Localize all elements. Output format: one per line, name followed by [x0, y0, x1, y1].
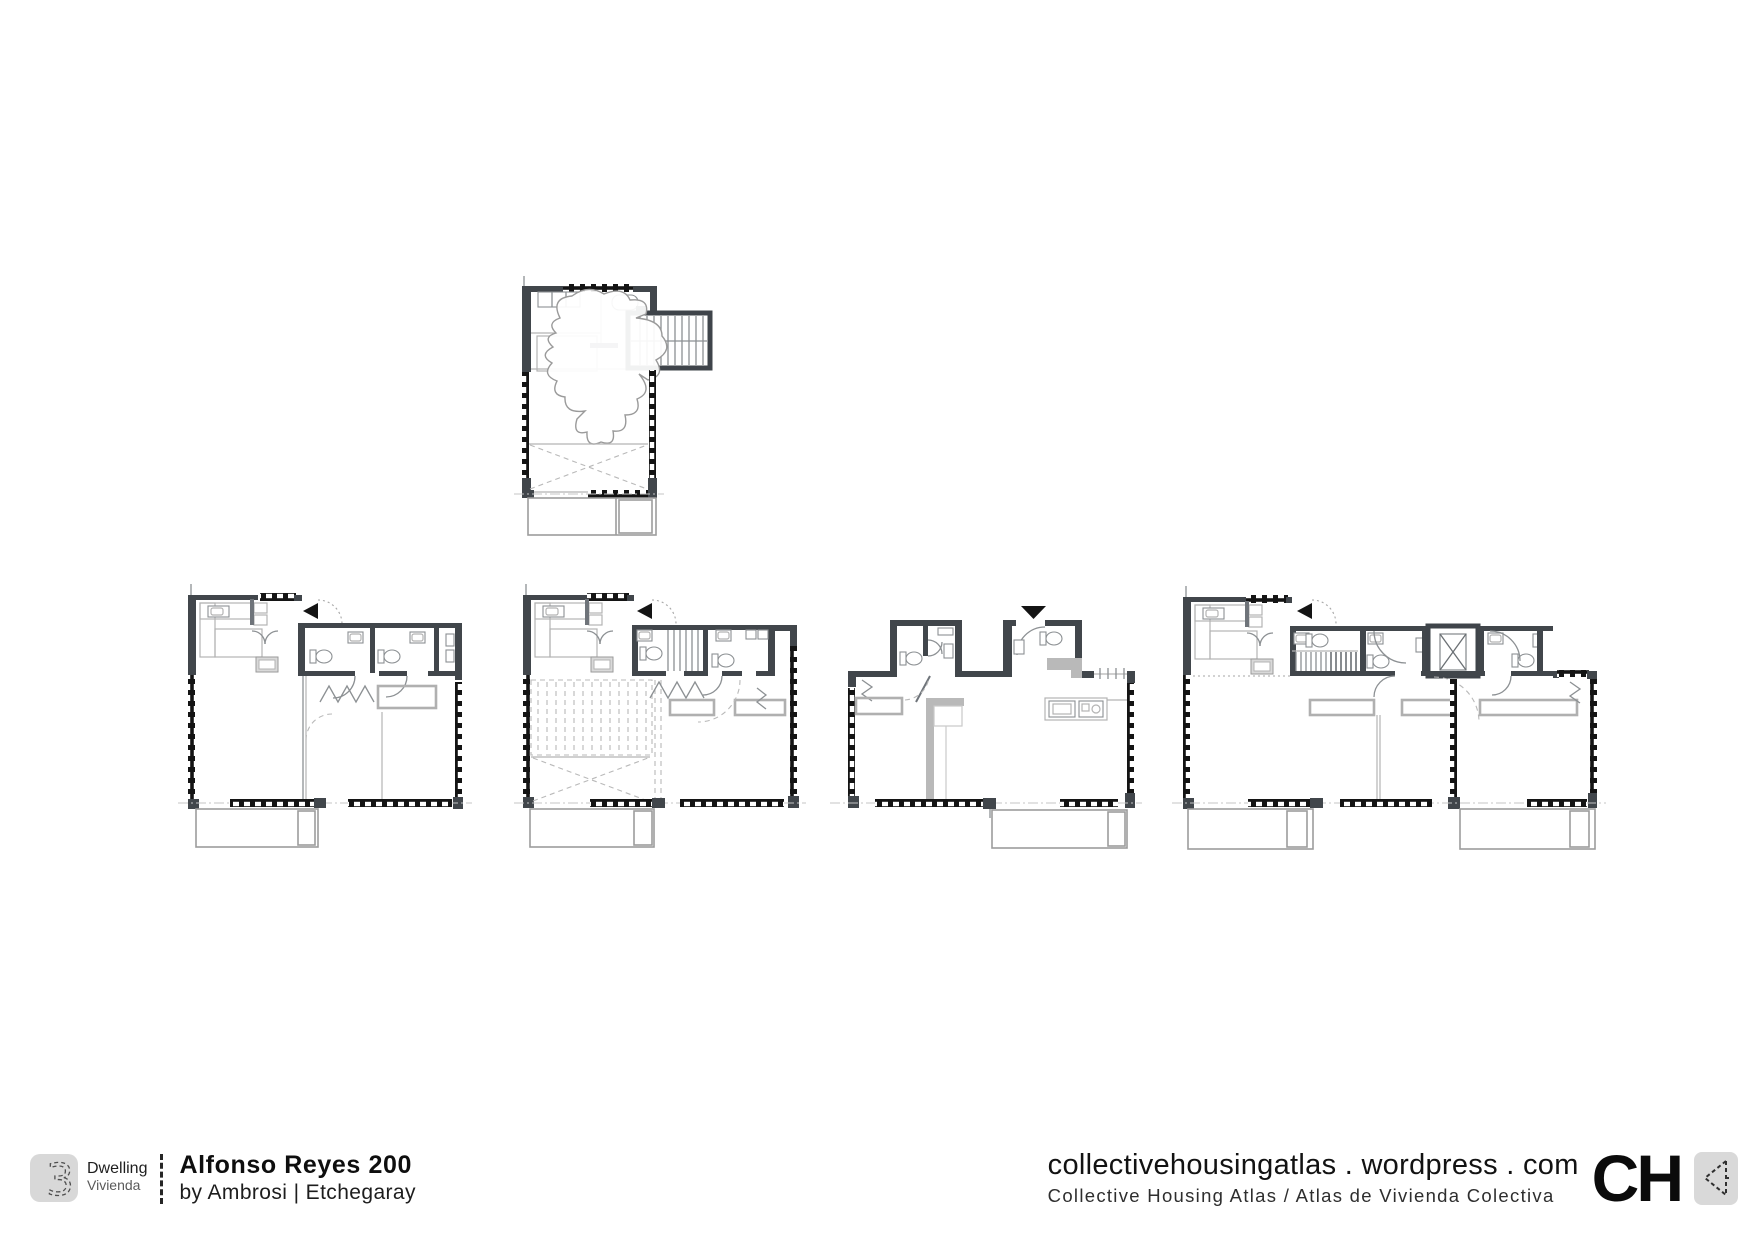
dwelling-label-en: Dwelling	[87, 1160, 147, 1178]
site-url: collectivehousingatlas . wordpress . com	[1048, 1150, 1579, 1182]
unit-plan-3	[830, 606, 1142, 848]
dwelling-count-badge: 3	[30, 1154, 78, 1202]
unit-plan-1	[178, 584, 472, 847]
entry-volume-right	[1003, 620, 1082, 678]
terrace-right	[1460, 809, 1595, 849]
project-titleblock: 3 Dwelling Vivienda Alfonso Reyes 200 by…	[30, 1154, 416, 1204]
roof-level-below-outline	[528, 498, 656, 535]
roof-void	[529, 444, 648, 489]
bedroom-fittings	[650, 680, 785, 722]
entry-arrow-icon	[1297, 603, 1312, 619]
unit-plan-4	[1172, 586, 1606, 849]
unit-plan-2	[514, 584, 806, 847]
kitchen-area	[535, 599, 613, 672]
entry-arrow-down-icon	[1021, 606, 1046, 619]
atlas-credit: collectivehousingatlas . wordpress . com…	[1048, 1150, 1738, 1206]
dashed-divider	[160, 1154, 163, 1204]
bathroom-volume-left	[890, 620, 962, 677]
roof-plan	[514, 276, 710, 535]
entry-arrow-icon	[303, 603, 318, 619]
terrace-left	[1188, 809, 1313, 849]
floor-plans-canvas	[0, 0, 1754, 1240]
bathroom-stair-core	[632, 625, 797, 695]
interior-partitions	[1310, 679, 1580, 809]
terrace	[530, 809, 654, 847]
atlas-logo-box	[1694, 1152, 1738, 1205]
elevator	[1428, 626, 1478, 676]
atlas-logo-text: CH	[1592, 1151, 1681, 1205]
site-tagline: Collective Housing Atlas / Atlas de Vivi…	[1048, 1186, 1579, 1206]
interior-partitions	[303, 676, 436, 801]
kitchen-area	[1045, 698, 1127, 720]
terrace	[196, 809, 318, 847]
kitchen-area	[200, 599, 278, 672]
entry-arrow-icon	[637, 603, 652, 619]
double-height-louvers	[531, 680, 652, 755]
interior-partitions	[856, 676, 964, 802]
dwelling-label-es: Vivienda	[87, 1178, 147, 1193]
cursor-arrow-icon	[1696, 1153, 1736, 1203]
project-byline: by Ambrosi | Etchegaray	[179, 1181, 415, 1204]
void-cross	[531, 757, 650, 801]
kitchen-area	[1193, 601, 1290, 676]
service-core	[1290, 626, 1553, 722]
dashed-number-icon: 3	[30, 1154, 78, 1202]
dwelling-count: 3	[46, 1155, 74, 1206]
terrace	[992, 810, 1127, 848]
project-title: Alfonso Reyes 200	[179, 1152, 415, 1180]
